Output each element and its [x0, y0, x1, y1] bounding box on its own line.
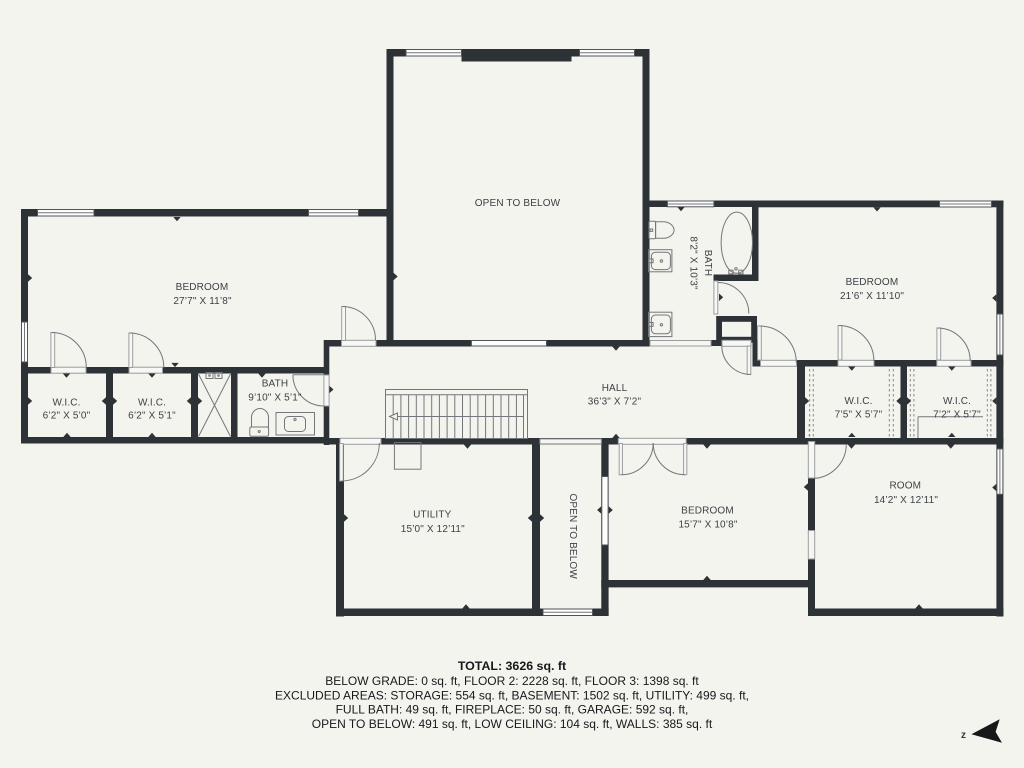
svg-text:15’7" X 10’8": 15’7" X 10’8" [678, 520, 737, 531]
svg-text:OPEN TO BELOW: OPEN TO BELOW [475, 198, 561, 209]
svg-text:BEDROOM: BEDROOM [846, 277, 899, 288]
svg-text:W.I.C.: W.I.C. [943, 396, 971, 407]
svg-text:UTILITY: UTILITY [413, 510, 451, 521]
svg-text:9’10" X 5’1": 9’10" X 5’1" [248, 393, 302, 404]
svg-text:BELOW GRADE: 0 sq. ft, FLOOR 2: BELOW GRADE: 0 sq. ft, FLOOR 2: 2228 sq.… [325, 674, 699, 688]
svg-text:OPEN TO BELOW: 491 sq. ft, LOW: OPEN TO BELOW: 491 sq. ft, LOW CEILING: … [312, 717, 713, 731]
svg-text:21’6" X 11’10": 21’6" X 11’10" [840, 291, 904, 302]
svg-text:W.I.C.: W.I.C. [138, 398, 166, 409]
svg-text:8’2" X 10’3": 8’2" X 10’3" [688, 236, 699, 290]
svg-text:z: z [961, 730, 966, 741]
svg-text:7’5" X 5’7": 7’5" X 5’7" [835, 410, 883, 421]
svg-text:W.I.C.: W.I.C. [52, 398, 80, 409]
svg-text:BEDROOM: BEDROOM [176, 282, 229, 293]
svg-text:BATH: BATH [702, 250, 713, 277]
svg-text:EXCLUDED AREAS: STORAGE: 554 s: EXCLUDED AREAS: STORAGE: 554 sq. ft, BAS… [275, 688, 749, 702]
svg-text:BATH: BATH [262, 379, 289, 390]
svg-text:36’3" X 7’2": 36’3" X 7’2" [588, 397, 642, 408]
svg-text:HALL: HALL [602, 383, 628, 394]
svg-text:7’2" X 5’7": 7’2" X 5’7" [933, 410, 981, 421]
svg-text:ROOM: ROOM [889, 481, 921, 492]
svg-text:TOTAL: 3626 sq. ft: TOTAL: 3626 sq. ft [458, 659, 566, 673]
svg-text:FULL BATH: 49 sq. ft, FIREPLAC: FULL BATH: 49 sq. ft, FIREPLACE: 50 sq. … [336, 703, 689, 717]
svg-text:OPEN TO BELOW: OPEN TO BELOW [567, 493, 578, 579]
svg-text:BEDROOM: BEDROOM [681, 506, 734, 517]
svg-text:15’0" X 12’11": 15’0" X 12’11" [401, 524, 465, 535]
svg-text:27’7" X 11’8": 27’7" X 11’8" [173, 296, 232, 307]
svg-text:W.I.C.: W.I.C. [844, 396, 872, 407]
svg-text:6’2" X 5’0": 6’2" X 5’0" [43, 411, 91, 422]
svg-text:14’2" X 12’11": 14’2" X 12’11" [874, 495, 938, 506]
svg-text:6’2" X 5’1": 6’2" X 5’1" [128, 411, 176, 422]
